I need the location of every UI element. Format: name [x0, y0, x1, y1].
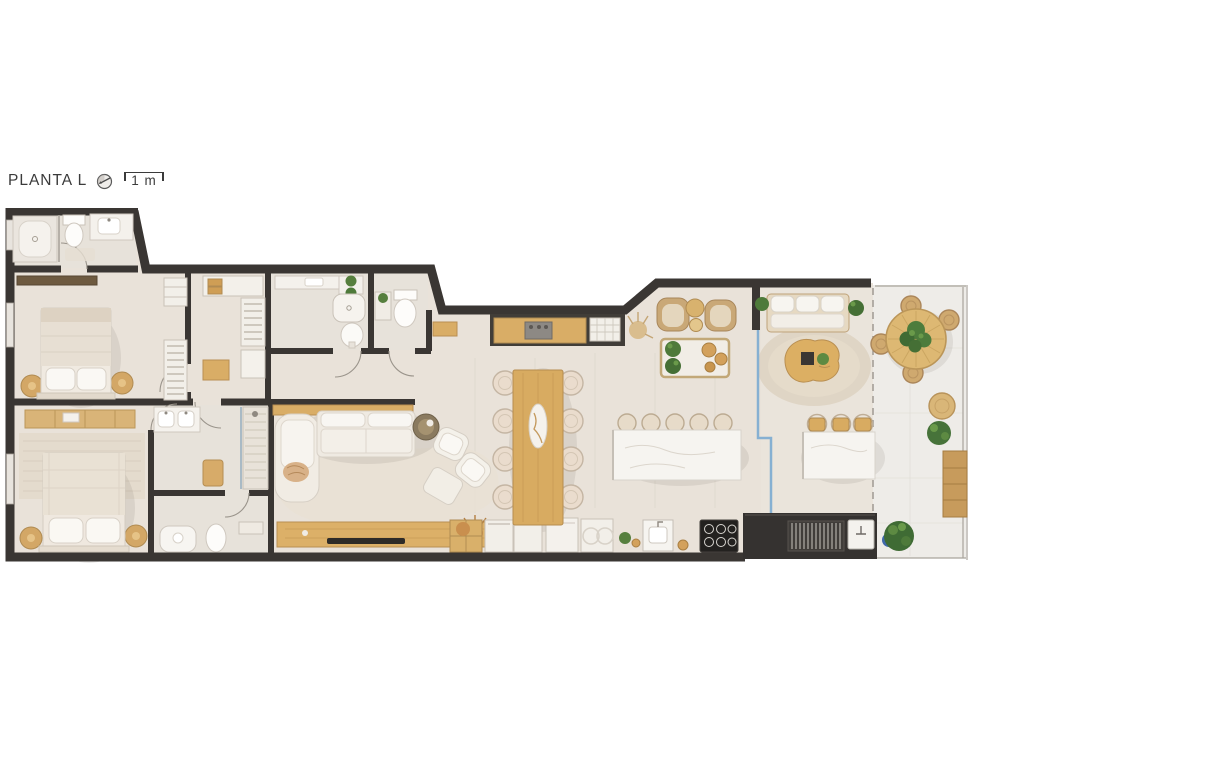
hall — [433, 322, 457, 336]
pillow — [77, 368, 106, 390]
tv — [327, 538, 405, 544]
wardrobe-shelf — [25, 410, 135, 428]
toilet — [394, 299, 416, 327]
wardrobe — [164, 340, 187, 400]
tray — [801, 352, 814, 365]
cushion — [821, 296, 844, 312]
rattan-armchair — [657, 298, 689, 331]
kitchen-top-counter — [490, 314, 625, 346]
scale-label: 1 m — [131, 173, 157, 188]
headboard — [39, 546, 129, 552]
pillow — [46, 368, 75, 390]
cabinet — [485, 520, 513, 552]
floor-plan — [5, 208, 970, 565]
rattan-armchair — [705, 300, 736, 331]
cushion — [796, 296, 819, 312]
plant — [619, 532, 631, 544]
hall-console — [433, 322, 457, 336]
throw-blanket — [283, 462, 309, 482]
plant — [817, 353, 829, 365]
plant — [848, 300, 864, 316]
plant — [665, 358, 681, 374]
shower-square — [333, 294, 365, 322]
bar-island — [803, 432, 875, 479]
plant — [346, 276, 357, 287]
plan-header: PLANTA L 1 m — [8, 172, 164, 190]
dining-table — [513, 370, 563, 525]
bath-mat — [65, 248, 95, 261]
master-bed — [39, 453, 129, 552]
double-bed — [37, 308, 115, 399]
page-title: PLANTA L — [8, 172, 87, 190]
bowl — [678, 540, 688, 550]
cushion — [321, 413, 365, 427]
bench — [943, 451, 967, 517]
kitchen-island — [613, 414, 741, 480]
cooktop — [700, 520, 738, 552]
headboard — [37, 393, 115, 399]
lounge-coffee-table — [661, 339, 729, 377]
console-desk — [203, 360, 229, 380]
plant — [755, 297, 769, 311]
page: { "header": { "title": "PLANTA L", "scal… — [0, 0, 1229, 768]
dresser — [164, 278, 187, 306]
cushion — [368, 413, 412, 427]
side-table — [686, 299, 704, 317]
shower-floor — [243, 407, 268, 489]
plant — [665, 341, 681, 357]
toilet — [65, 223, 83, 247]
scale-bar: 1 m — [124, 172, 164, 190]
pouf — [929, 393, 955, 419]
bowl — [702, 343, 716, 357]
bowl — [715, 353, 727, 365]
grill — [788, 521, 844, 551]
wc-toilet — [206, 524, 226, 552]
sink-unit — [643, 520, 673, 551]
towel-shelf — [239, 522, 263, 534]
north-arrow-icon — [96, 173, 113, 190]
shower-head — [252, 411, 258, 417]
window — [7, 454, 14, 504]
outdoor-sofa — [767, 294, 849, 332]
potted-plant — [927, 421, 951, 445]
window — [7, 303, 14, 347]
bowl — [705, 362, 715, 372]
range — [525, 322, 552, 339]
organic-coffee-table — [785, 340, 839, 383]
sofa — [317, 411, 415, 457]
centerpiece — [529, 404, 547, 448]
dining-area — [493, 370, 583, 525]
bowl — [632, 539, 640, 547]
bench — [203, 460, 223, 486]
side-table — [690, 319, 703, 332]
chaise — [275, 414, 319, 502]
window — [7, 220, 14, 250]
pillow — [86, 518, 120, 543]
cushion — [771, 296, 794, 312]
cabinet — [241, 350, 265, 378]
plant — [378, 293, 388, 303]
pillow — [49, 518, 83, 543]
grill-sink — [848, 520, 874, 549]
wall-console — [17, 276, 97, 285]
toilet-tank — [394, 290, 417, 300]
